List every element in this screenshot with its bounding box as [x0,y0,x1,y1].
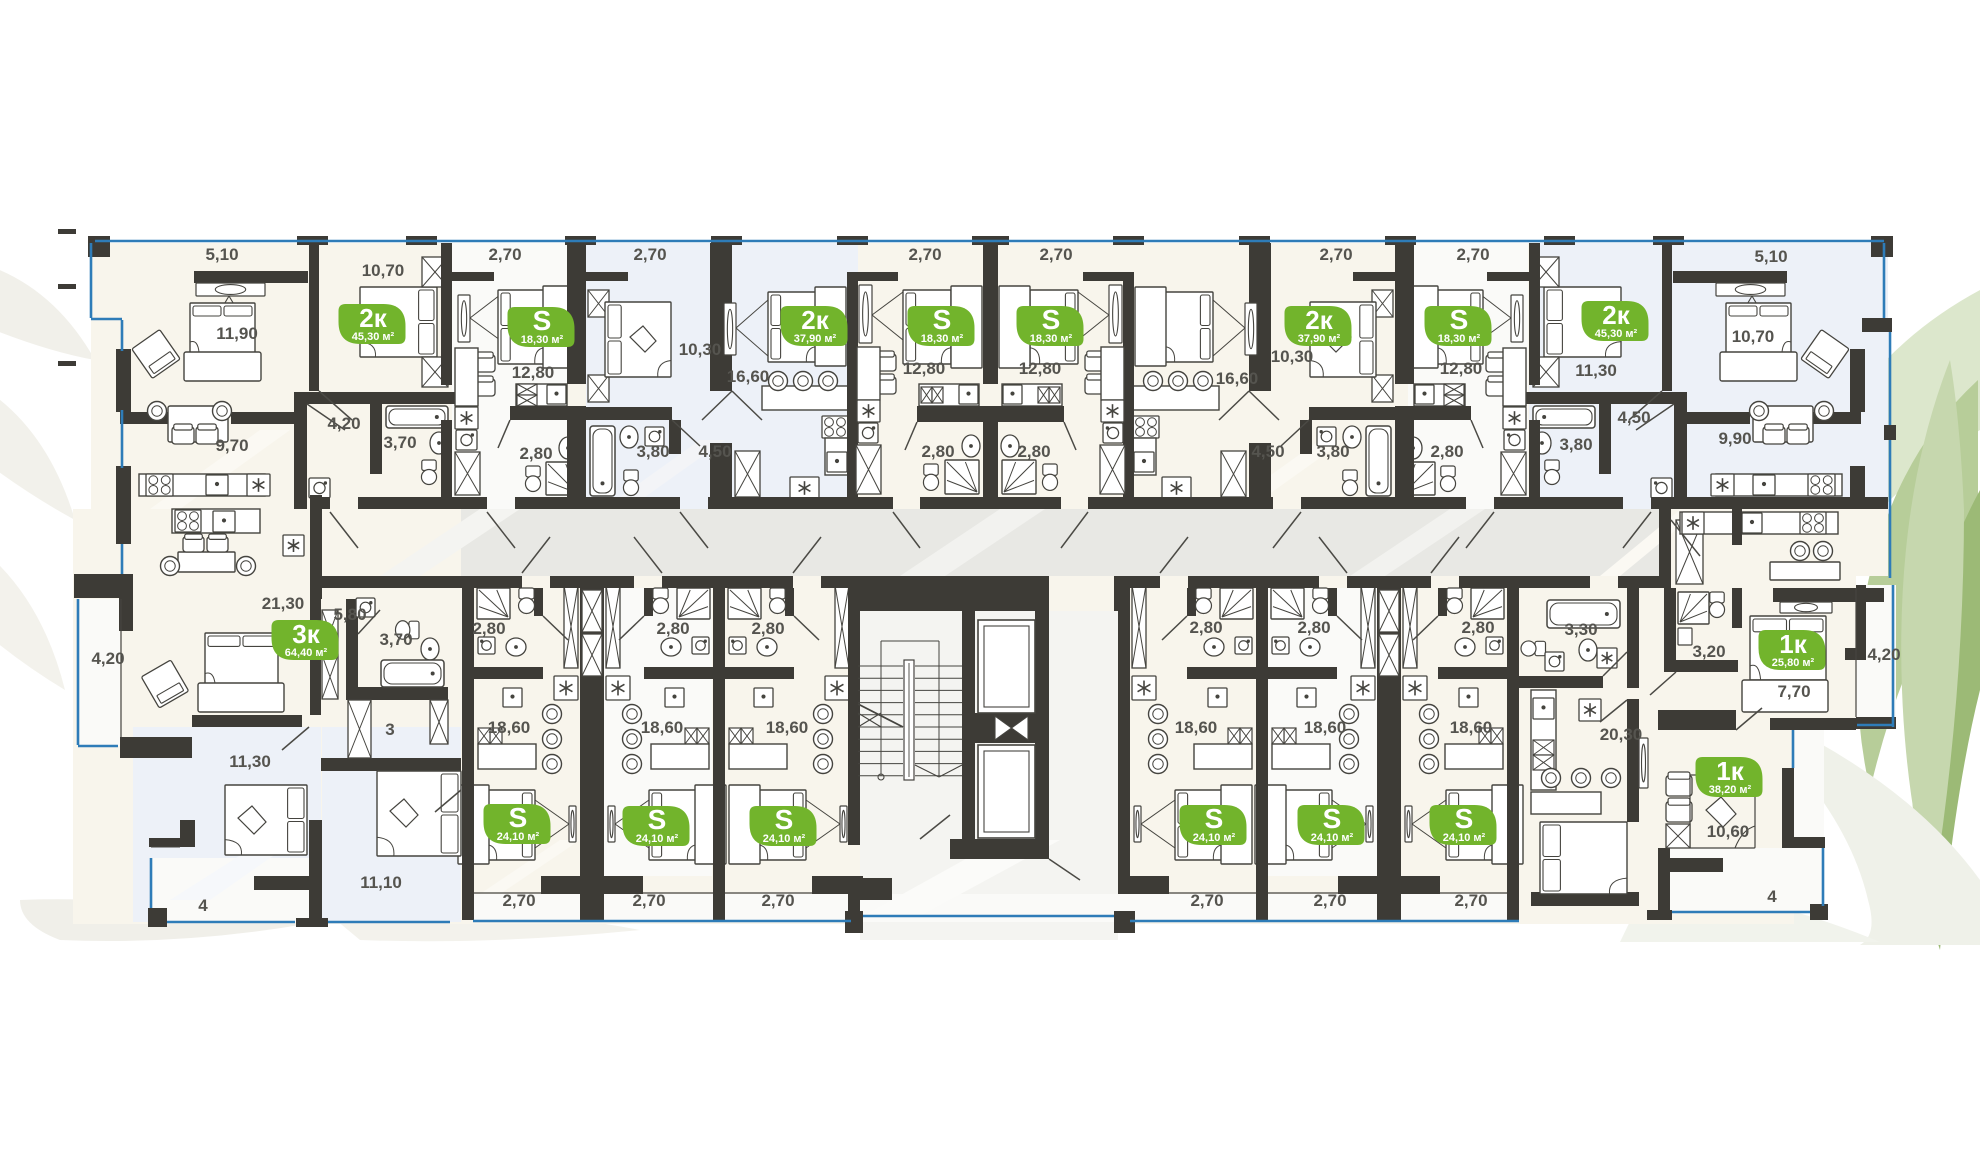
svg-text:2,70: 2,70 [502,891,535,910]
svg-text:18,60: 18,60 [1304,718,1347,737]
svg-text:2,80: 2,80 [656,619,689,638]
svg-text:2,80: 2,80 [921,442,954,461]
svg-text:2к: 2к [1305,305,1333,335]
svg-text:S: S [533,305,552,336]
svg-text:4,20: 4,20 [91,649,124,668]
svg-text:2,70: 2,70 [632,891,665,910]
svg-text:18,30 м²: 18,30 м² [921,333,964,345]
svg-text:2,70: 2,70 [761,891,794,910]
svg-text:S: S [1042,304,1061,335]
svg-text:2,70: 2,70 [1319,245,1352,264]
svg-text:12,80: 12,80 [512,363,555,382]
svg-text:11,30: 11,30 [229,752,271,771]
svg-text:10,30: 10,30 [1271,347,1314,366]
svg-text:4,50: 4,50 [1617,408,1650,427]
svg-text:2,80: 2,80 [1297,618,1330,637]
svg-text:4,50: 4,50 [698,442,731,461]
svg-text:1к: 1к [1779,629,1807,659]
svg-text:S: S [648,804,667,835]
svg-text:S: S [1205,803,1224,834]
svg-text:24,10 м²: 24,10 м² [497,831,540,843]
svg-text:3к: 3к [292,619,320,649]
svg-text:18,60: 18,60 [1450,718,1493,737]
svg-text:2,70: 2,70 [633,245,666,264]
svg-text:10,30: 10,30 [679,340,722,359]
svg-text:4: 4 [198,896,208,915]
svg-text:18,30 м²: 18,30 м² [1438,333,1481,345]
svg-text:18,60: 18,60 [766,718,809,737]
svg-text:10,70: 10,70 [362,261,405,280]
svg-text:37,90 м²: 37,90 м² [1298,333,1341,345]
svg-text:4,20: 4,20 [327,414,360,433]
svg-text:11,90: 11,90 [216,324,258,343]
svg-text:18,30 м²: 18,30 м² [521,334,564,346]
svg-text:24,10 м²: 24,10 м² [763,833,806,845]
svg-text:2,70: 2,70 [488,245,521,264]
svg-text:12,80: 12,80 [1019,359,1062,378]
svg-text:2,80: 2,80 [1189,618,1222,637]
svg-text:3,70: 3,70 [383,433,416,452]
svg-text:2к: 2к [801,305,829,335]
svg-text:S: S [1450,304,1469,335]
svg-text:11,10: 11,10 [360,873,402,892]
svg-text:10,60: 10,60 [1707,822,1750,841]
svg-text:45,30 м²: 45,30 м² [352,331,395,343]
svg-text:2,70: 2,70 [1456,245,1489,264]
svg-text:3,80: 3,80 [1316,442,1349,461]
svg-text:24,10 м²: 24,10 м² [636,833,679,845]
svg-text:2,70: 2,70 [1454,891,1487,910]
svg-text:2,70: 2,70 [908,245,941,264]
svg-text:3,20: 3,20 [1692,642,1725,661]
svg-text:S: S [775,804,794,835]
svg-text:S: S [1455,803,1474,834]
svg-text:18,60: 18,60 [641,718,684,737]
svg-text:18,60: 18,60 [488,718,531,737]
svg-text:4,50: 4,50 [1251,442,1284,461]
svg-text:2,70: 2,70 [1039,245,1072,264]
svg-text:37,90 м²: 37,90 м² [794,333,837,345]
svg-text:2,80: 2,80 [519,444,552,463]
svg-text:16,60: 16,60 [1216,369,1259,388]
svg-text:64,40 м²: 64,40 м² [285,647,328,659]
svg-text:7,70: 7,70 [1777,682,1810,701]
svg-text:3,80: 3,80 [1559,435,1592,454]
svg-text:3,30: 3,30 [1564,620,1597,639]
svg-text:38,20 м²: 38,20 м² [1709,784,1752,796]
svg-text:3,70: 3,70 [379,630,412,649]
svg-text:18,60: 18,60 [1175,718,1218,737]
svg-text:2,70: 2,70 [1190,891,1223,910]
svg-text:18,30 м²: 18,30 м² [1030,333,1073,345]
svg-text:9,90: 9,90 [1718,429,1751,448]
svg-text:2,80: 2,80 [1017,442,1050,461]
svg-text:24,10 м²: 24,10 м² [1443,832,1486,844]
svg-text:24,10 м²: 24,10 м² [1311,832,1354,844]
svg-text:3,80: 3,80 [636,442,669,461]
svg-text:9,70: 9,70 [215,436,248,455]
svg-text:2,80: 2,80 [1461,618,1494,637]
svg-text:4,20: 4,20 [1867,645,1900,664]
svg-text:5,10: 5,10 [1754,247,1787,266]
svg-text:S: S [509,802,528,833]
svg-text:4: 4 [1767,887,1777,906]
svg-text:12,80: 12,80 [1440,359,1483,378]
svg-text:2,80: 2,80 [1430,442,1463,461]
svg-text:5,10: 5,10 [205,245,238,264]
svg-text:11,30: 11,30 [1575,361,1617,380]
svg-text:1к: 1к [1716,756,1744,786]
svg-text:24,10 м²: 24,10 м² [1193,832,1236,844]
svg-text:45,30 м²: 45,30 м² [1595,328,1638,340]
svg-text:20,30: 20,30 [1600,725,1643,744]
svg-text:21,30: 21,30 [262,594,305,613]
svg-text:2к: 2к [359,303,387,333]
svg-text:2,70: 2,70 [1313,891,1346,910]
svg-text:3: 3 [385,720,394,739]
svg-text:2к: 2к [1602,300,1630,330]
svg-text:12,80: 12,80 [903,359,946,378]
svg-text:2,80: 2,80 [751,619,784,638]
svg-text:S: S [933,304,952,335]
svg-text:5,80: 5,80 [333,605,366,624]
svg-text:25,80 м²: 25,80 м² [1772,657,1815,669]
svg-text:S: S [1323,803,1342,834]
svg-text:10,70: 10,70 [1732,327,1775,346]
svg-text:2,80: 2,80 [472,619,505,638]
svg-text:16,60: 16,60 [727,367,770,386]
